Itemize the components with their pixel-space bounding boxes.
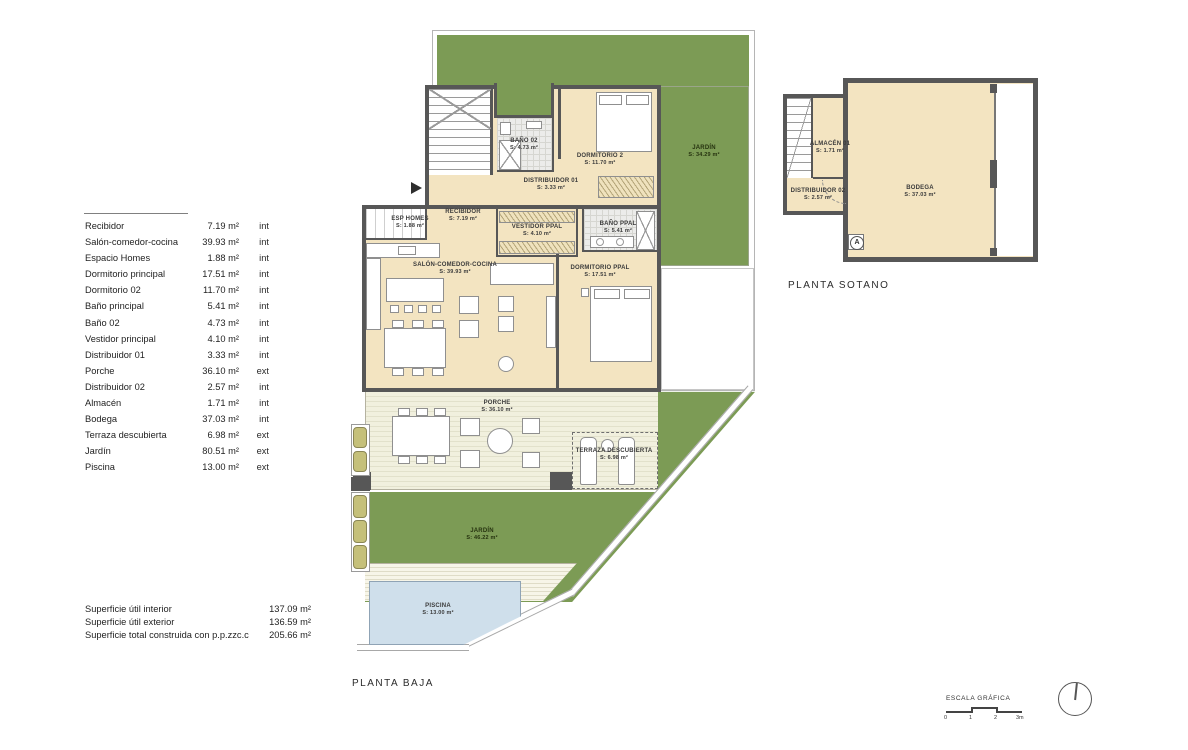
chair	[392, 368, 404, 376]
wardrobe-vestidor-bottom	[499, 241, 575, 254]
room-label-bodega: BODEGAS: 37.03 m²	[904, 185, 935, 199]
room-label-salon: SALÓN-COMEDOR-COCINAS: 39.93 m²	[413, 262, 497, 276]
chair	[412, 368, 424, 376]
legend: Recibidor7.19 m²int Salón-comedor-cocina…	[85, 221, 269, 479]
wardrobe-vestidor-top	[499, 211, 575, 223]
stove	[398, 246, 416, 255]
legend-divider	[84, 213, 188, 214]
armchair	[459, 320, 479, 338]
chair	[398, 408, 410, 416]
stool	[390, 305, 399, 313]
chair	[432, 368, 444, 376]
planter	[353, 427, 367, 448]
room-label-recibidor: RECIBIDORS: 7.19 m²	[445, 209, 480, 223]
porch-dining-table	[392, 416, 450, 456]
wall-almacen	[813, 177, 846, 179]
scale-segment	[996, 711, 1022, 713]
legend-row: Piscina13.00 m²ext	[85, 462, 269, 478]
legend-row: Dormitorio 0211.70 m²int	[85, 285, 269, 301]
room-label-bano-ppal: BAÑO PPALS: 5.41 m²	[600, 221, 637, 235]
garden-notch	[494, 83, 554, 118]
sink	[526, 121, 542, 129]
garden-top	[437, 35, 749, 86]
planter	[353, 545, 367, 569]
wall-salon-dormppal	[556, 252, 559, 388]
nightstand	[581, 288, 589, 297]
chair	[398, 456, 410, 464]
tv-unit	[546, 296, 556, 348]
stool	[418, 305, 427, 313]
room-label-dorm-ppal: DORMITORIO PPALS: 17.51 m²	[570, 265, 629, 279]
pillow	[624, 289, 650, 299]
armchair	[459, 296, 479, 314]
scale-step	[971, 707, 973, 713]
plant	[498, 356, 514, 372]
legend-row: Dormitorio principal17.51 m²int	[85, 269, 269, 285]
totals-row: Superficie total construida con p.p.zzc.…	[85, 630, 311, 643]
chair	[392, 320, 404, 328]
basin	[616, 238, 624, 246]
boundary-path-bottom	[357, 644, 469, 651]
pillar	[550, 472, 572, 490]
kitchen-counter-left	[366, 258, 381, 330]
stairs-cross-lines	[429, 89, 491, 129]
legend-row: Almacén1.71 m²int	[85, 398, 269, 414]
chair	[432, 320, 444, 328]
legend-row: Recibidor7.19 m²int	[85, 221, 269, 237]
scale-segment	[946, 711, 972, 713]
room-label-porche: PORCHES: 36.10 m²	[481, 400, 512, 414]
window-mullion	[990, 84, 997, 93]
wardrobe-dorm2	[598, 176, 654, 198]
room-label-terraza: TERRAZA DESCUBIERTAS: 6.98 m²	[576, 448, 653, 462]
pillow	[599, 95, 622, 105]
room-label-vestidor: VESTIDOR PPALS: 4.10 m²	[512, 224, 563, 238]
shower-ppal	[636, 211, 655, 250]
scale-tick: 1	[969, 715, 972, 721]
legend-row: Distribuidor 013.33 m²int	[85, 350, 269, 366]
pillar	[351, 477, 370, 491]
chair	[416, 456, 428, 464]
room-label-distribuidor02: DISTRIBUIDOR 02S: 2.57 m²	[791, 188, 846, 202]
plan-title-sotano: PLANTA SOTANO	[788, 280, 889, 291]
coffee-table	[498, 296, 514, 312]
scale-tick: 3m	[1016, 715, 1024, 721]
toilet	[500, 122, 511, 135]
planter	[353, 520, 367, 543]
chair	[434, 456, 446, 464]
scale-step	[996, 707, 998, 713]
pillow	[626, 95, 649, 105]
room-label-jardin-top: JARDÍNS: 34.29 m²	[688, 145, 719, 159]
coffee-table	[498, 316, 514, 332]
planter	[353, 451, 367, 472]
room-label-bano02: BAÑO 02S: 4.73 m²	[510, 138, 538, 152]
room-label-dorm2: DORMITORIO 2S: 11.70 m²	[577, 153, 623, 167]
room-label-esp-homes: ESP HOMESS: 1.88 m²	[391, 216, 428, 230]
room-label-almacen: ALMACÉN 01S: 1.71 m²	[810, 141, 850, 155]
section-marker-box: A	[848, 234, 864, 250]
room-label-jardin-bottom: JARDÍNS: 46.22 m²	[466, 528, 497, 542]
porch-armchair	[460, 418, 480, 436]
stairs-diagonal	[787, 98, 811, 178]
basement-lightwell	[994, 84, 1033, 256]
chair	[434, 408, 446, 416]
legend-row: Distribuidor 022.57 m²int	[85, 382, 269, 398]
porch-armchair	[460, 450, 480, 468]
legend-row: Jardín80.51 m²ext	[85, 446, 269, 462]
entrance-arrow-icon	[411, 182, 422, 194]
legend-row: Salón-comedor-cocina39.93 m²int	[85, 237, 269, 253]
wall-dorm2	[558, 89, 561, 159]
basin	[596, 238, 604, 246]
legend-row: Bodega37.03 m²int	[85, 414, 269, 430]
chair	[412, 320, 424, 328]
garden-right	[658, 86, 749, 266]
porch-chair	[522, 452, 540, 468]
dining-table	[384, 328, 446, 368]
stool	[404, 305, 413, 313]
legend-row: Espacio Homes1.88 m²int	[85, 253, 269, 269]
floor-plan-sheet: Recibidor7.19 m²int Salón-comedor-cocina…	[0, 0, 1188, 750]
porch-chair	[522, 418, 540, 434]
section-marker-a: A	[850, 236, 864, 250]
window-mullion	[990, 248, 997, 256]
kitchen-island	[386, 278, 444, 302]
legend-row: Terraza descubierta6.98 m²ext	[85, 430, 269, 446]
scale-segment	[971, 707, 997, 709]
plan-title-baja: PLANTA BAJA	[352, 678, 434, 689]
stool	[432, 305, 441, 313]
totals-row: Superficie útil exterior136.59 m²	[85, 617, 311, 630]
scale-tick: 0	[944, 715, 947, 721]
room-label-piscina: PISCINAS: 13.00 m²	[422, 603, 453, 617]
chair	[416, 408, 428, 416]
sofa	[490, 263, 554, 285]
side-terrace-plot	[661, 268, 754, 390]
totals-row: Superficie útil interior137.09 m²	[85, 604, 311, 617]
scale-title: ESCALA GRÁFICA	[946, 695, 1010, 702]
totals: Superficie útil interior137.09 m² Superf…	[85, 604, 311, 644]
planter	[353, 495, 367, 518]
legend-row: Baño principal5.41 m²int	[85, 301, 269, 317]
pillow	[594, 289, 620, 299]
scale-tick: 2	[994, 715, 997, 721]
legend-row: Baño 024.73 m²int	[85, 318, 269, 334]
legend-row: Porche36.10 m²ext	[85, 366, 269, 382]
legend-row: Vestidor principal4.10 m²int	[85, 334, 269, 350]
window-mullion	[990, 160, 997, 188]
room-label-distribuidor01: DISTRIBUIDOR 01S: 3.33 m²	[524, 178, 579, 192]
porch-round-table	[487, 428, 513, 454]
